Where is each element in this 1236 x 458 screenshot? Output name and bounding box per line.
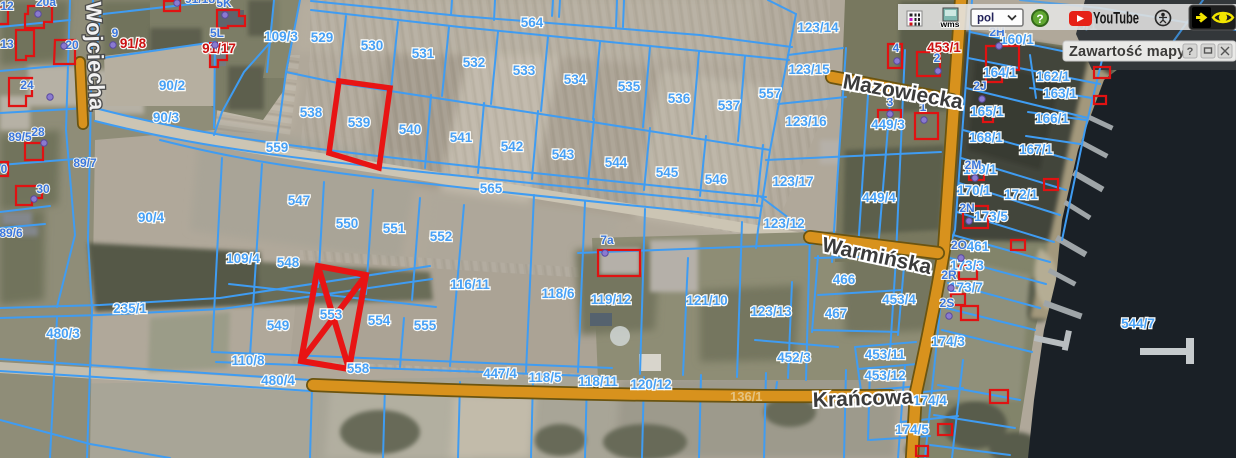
svg-text:453/12: 453/12 bbox=[864, 368, 905, 383]
svg-text:90/3: 90/3 bbox=[153, 110, 180, 125]
svg-text:467: 467 bbox=[825, 306, 848, 321]
svg-text:553: 553 bbox=[320, 307, 343, 322]
svg-text:91/17: 91/17 bbox=[202, 41, 236, 56]
svg-text:2N: 2N bbox=[959, 201, 974, 215]
svg-text:wms: wms bbox=[940, 19, 960, 29]
svg-text:123/12: 123/12 bbox=[763, 216, 804, 231]
svg-text:123/14: 123/14 bbox=[797, 20, 839, 35]
svg-text:123/17: 123/17 bbox=[772, 174, 813, 189]
svg-text:2S: 2S bbox=[940, 296, 955, 310]
svg-text:2O: 2O bbox=[951, 238, 967, 252]
svg-text:Zawartość mapy: Zawartość mapy bbox=[1069, 44, 1185, 60]
svg-text:542: 542 bbox=[501, 139, 524, 154]
svg-text:160/1: 160/1 bbox=[1000, 32, 1034, 47]
svg-text:2: 2 bbox=[934, 51, 941, 65]
svg-text:164/1: 164/1 bbox=[983, 65, 1017, 80]
svg-text:539: 539 bbox=[348, 115, 371, 130]
svg-text:449/3: 449/3 bbox=[871, 117, 905, 132]
svg-text:89/7: 89/7 bbox=[73, 156, 97, 170]
svg-text:165/1: 165/1 bbox=[970, 104, 1004, 119]
svg-text:544/7: 544/7 bbox=[1121, 316, 1155, 331]
svg-text:547: 547 bbox=[288, 193, 311, 208]
svg-text:550: 550 bbox=[336, 216, 359, 231]
svg-text:89/5: 89/5 bbox=[8, 130, 32, 144]
svg-text:162/1: 162/1 bbox=[1036, 69, 1070, 84]
svg-text:480/4: 480/4 bbox=[261, 373, 295, 388]
svg-text:544: 544 bbox=[605, 155, 628, 170]
svg-text:537: 537 bbox=[718, 98, 741, 113]
svg-text:123/16: 123/16 bbox=[785, 114, 827, 129]
svg-text:120/12: 120/12 bbox=[630, 377, 671, 392]
svg-text:123/13: 123/13 bbox=[750, 304, 792, 319]
svg-text:YouTube: YouTube bbox=[1093, 9, 1139, 28]
svg-text:235/1: 235/1 bbox=[113, 301, 147, 316]
svg-text:90/4: 90/4 bbox=[138, 210, 165, 225]
svg-text:540: 540 bbox=[399, 122, 422, 137]
svg-text:89/6: 89/6 bbox=[0, 226, 23, 240]
svg-text:453/4: 453/4 bbox=[882, 292, 916, 307]
svg-text:552: 552 bbox=[430, 229, 453, 244]
svg-text:174/3: 174/3 bbox=[931, 334, 965, 349]
svg-text:91/8: 91/8 bbox=[120, 36, 147, 51]
svg-text:Wojciecha: Wojciecha bbox=[81, 1, 110, 111]
svg-text:118/11: 118/11 bbox=[578, 374, 618, 389]
svg-text:109/4: 109/4 bbox=[226, 251, 260, 266]
svg-text:564: 564 bbox=[521, 15, 544, 30]
svg-text:90/2: 90/2 bbox=[159, 78, 185, 93]
svg-text:?: ? bbox=[1187, 46, 1194, 58]
svg-text:24: 24 bbox=[20, 78, 34, 92]
svg-text:453/1: 453/1 bbox=[927, 40, 961, 55]
svg-text:557: 557 bbox=[759, 86, 782, 101]
svg-text:452/3: 452/3 bbox=[777, 350, 811, 365]
svg-text:453/11: 453/11 bbox=[865, 347, 906, 362]
svg-text:4: 4 bbox=[893, 41, 900, 55]
svg-text:170/1: 170/1 bbox=[957, 183, 991, 198]
svg-text:30: 30 bbox=[36, 182, 50, 196]
svg-text:118/6: 118/6 bbox=[541, 286, 575, 301]
svg-text:168/1: 168/1 bbox=[969, 130, 1003, 145]
svg-text:136/1: 136/1 bbox=[730, 389, 763, 404]
svg-text:12: 12 bbox=[0, 0, 14, 13]
svg-text:480/3: 480/3 bbox=[46, 326, 80, 341]
svg-text:531: 531 bbox=[412, 46, 435, 61]
svg-text:7a: 7a bbox=[600, 233, 614, 247]
svg-text:530: 530 bbox=[361, 38, 384, 53]
svg-text:163/1: 163/1 bbox=[1043, 86, 1077, 101]
svg-text:551: 551 bbox=[383, 221, 406, 236]
svg-text:173/5: 173/5 bbox=[974, 209, 1008, 224]
svg-text:13: 13 bbox=[0, 37, 14, 51]
svg-text:543: 543 bbox=[552, 147, 575, 162]
svg-text:2M: 2M bbox=[965, 158, 982, 172]
svg-text:20a: 20a bbox=[36, 0, 56, 9]
svg-text:5K: 5K bbox=[216, 0, 232, 10]
svg-text:2R: 2R bbox=[941, 268, 957, 282]
svg-text:109/3: 109/3 bbox=[264, 29, 298, 44]
svg-text:554: 554 bbox=[368, 313, 391, 328]
svg-text:555: 555 bbox=[414, 318, 437, 333]
svg-text:447/4: 447/4 bbox=[483, 366, 517, 381]
svg-text:118/5: 118/5 bbox=[528, 370, 562, 385]
svg-text:91/18: 91/18 bbox=[185, 0, 215, 6]
svg-text:174/4: 174/4 bbox=[913, 393, 947, 408]
svg-text:533: 533 bbox=[513, 63, 536, 78]
svg-text:172/1: 172/1 bbox=[1004, 187, 1038, 202]
svg-text:110/8: 110/8 bbox=[231, 353, 265, 368]
svg-text:538: 538 bbox=[300, 105, 323, 120]
svg-text:466: 466 bbox=[833, 272, 856, 287]
svg-text:545: 545 bbox=[656, 165, 679, 180]
svg-text:535: 535 bbox=[618, 79, 641, 94]
svg-text:461: 461 bbox=[967, 239, 990, 254]
svg-text:167/1: 167/1 bbox=[1019, 142, 1053, 157]
svg-text:546: 546 bbox=[705, 172, 728, 187]
svg-text:116/11: 116/11 bbox=[450, 277, 490, 292]
svg-text:558: 558 bbox=[347, 361, 370, 376]
svg-text:449/4: 449/4 bbox=[862, 190, 896, 205]
svg-text:28: 28 bbox=[31, 125, 45, 139]
svg-text:541: 541 bbox=[450, 130, 473, 145]
svg-text:559: 559 bbox=[266, 140, 289, 155]
svg-text:121/10: 121/10 bbox=[686, 293, 727, 308]
svg-text:565: 565 bbox=[480, 181, 503, 196]
svg-text:123/15: 123/15 bbox=[788, 62, 830, 77]
svg-text:pol: pol bbox=[977, 13, 994, 25]
svg-text:536: 536 bbox=[668, 91, 691, 106]
svg-text:166/1: 166/1 bbox=[1035, 111, 1069, 126]
svg-text:?: ? bbox=[1036, 12, 1043, 26]
svg-text:534: 534 bbox=[564, 72, 587, 87]
svg-text:Krańcowa: Krańcowa bbox=[812, 385, 913, 411]
svg-text:2J: 2J bbox=[973, 79, 986, 93]
svg-text:548: 548 bbox=[277, 255, 300, 270]
svg-text:532: 532 bbox=[463, 55, 486, 70]
svg-text:119/12: 119/12 bbox=[591, 292, 632, 307]
svg-text:5L: 5L bbox=[210, 26, 224, 40]
svg-text:549: 549 bbox=[267, 318, 290, 333]
svg-text:174/5: 174/5 bbox=[895, 422, 929, 437]
svg-text:529: 529 bbox=[311, 30, 334, 45]
svg-text:0: 0 bbox=[1, 162, 8, 176]
svg-text:9: 9 bbox=[112, 26, 119, 40]
